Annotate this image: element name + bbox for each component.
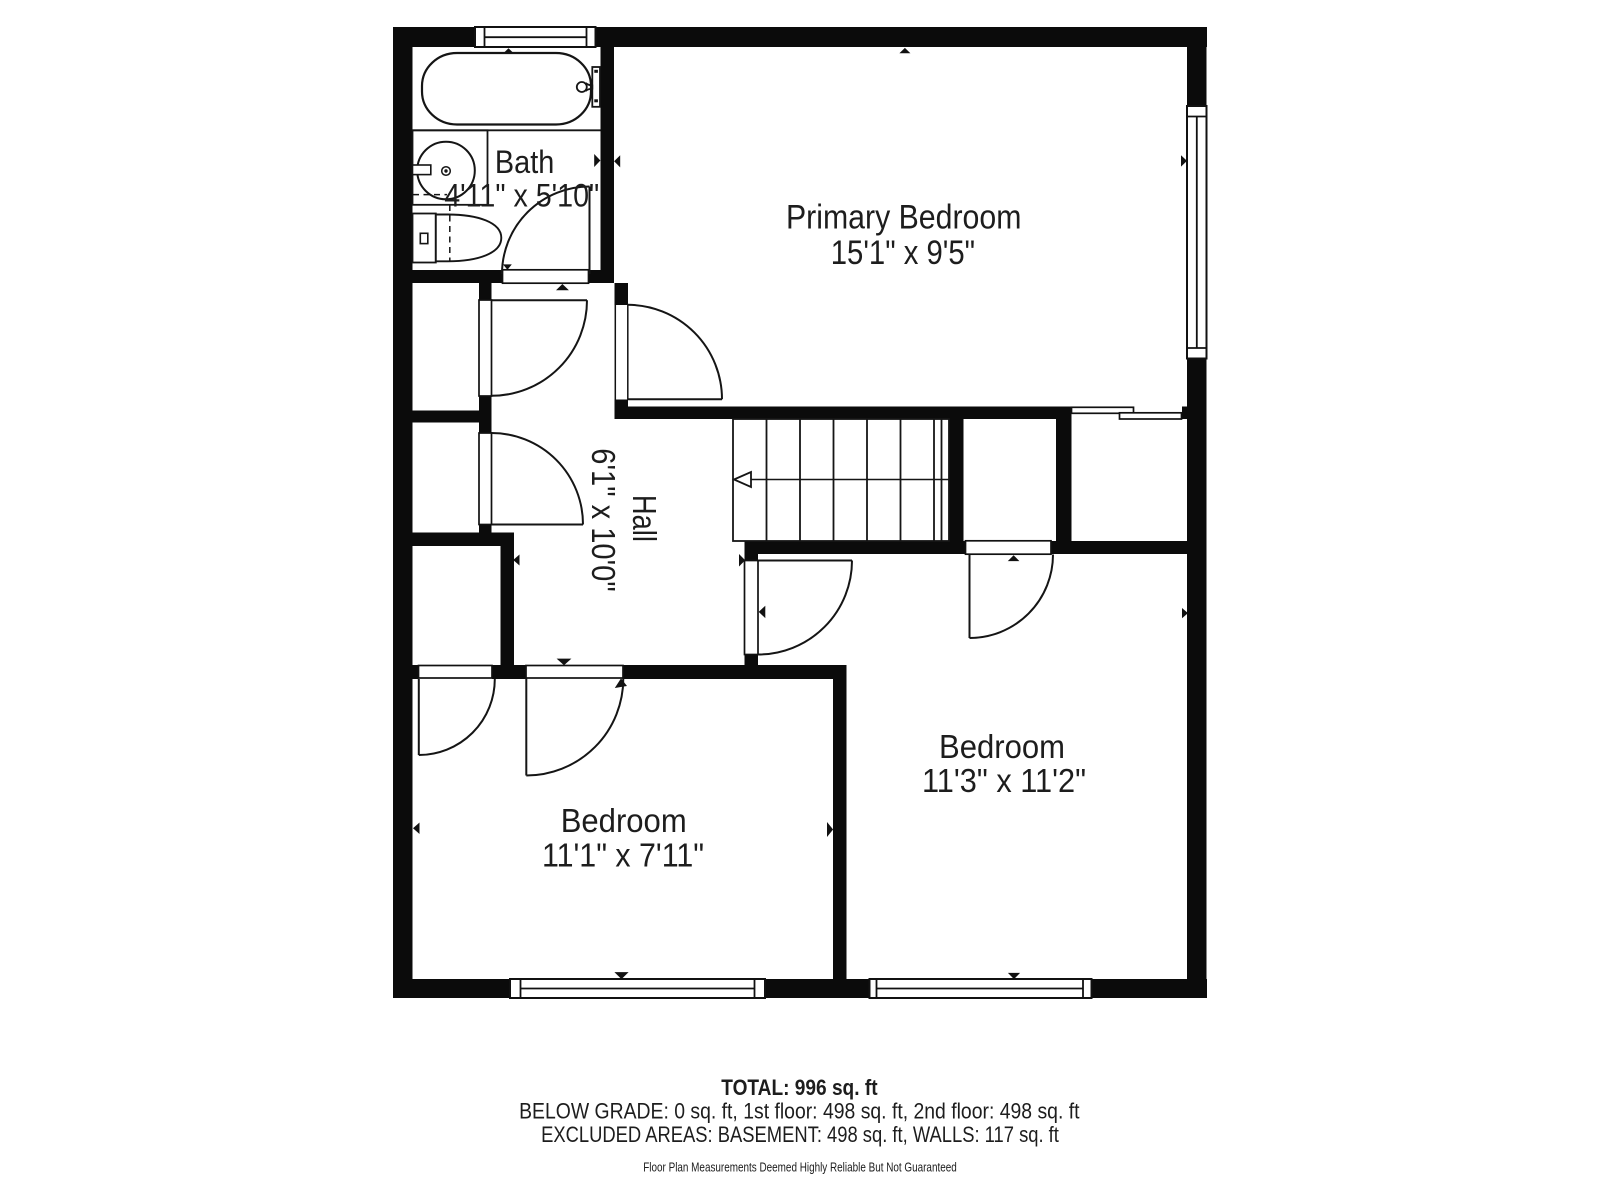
svg-text:TOTAL: 996 sq. ft: TOTAL: 996 sq. ft [721, 1075, 878, 1100]
svg-text:Primary Bedroom: Primary Bedroom [786, 199, 1021, 237]
svg-text:EXCLUDED AREAS: BASEMENT: 498: EXCLUDED AREAS: BASEMENT: 498 sq. ft, WA… [541, 1122, 1059, 1147]
svg-text:15'1" x 9'5": 15'1" x 9'5" [831, 234, 975, 272]
svg-text:Hall: Hall [626, 495, 663, 542]
svg-text:Bedroom: Bedroom [561, 802, 687, 839]
svg-text:11'3" x 11'2": 11'3" x 11'2" [922, 762, 1086, 799]
svg-text:11'1" x 7'11": 11'1" x 7'11" [542, 837, 704, 874]
svg-text:Bath: Bath [495, 144, 554, 180]
svg-text:6'1" x 10'0": 6'1" x 10'0" [585, 448, 622, 591]
svg-text:4'11" x 5'10": 4'11" x 5'10" [444, 178, 599, 214]
svg-text:Floor Plan Measurements Deemed: Floor Plan Measurements Deemed Highly Re… [643, 1160, 957, 1175]
svg-text:Bedroom: Bedroom [939, 728, 1065, 765]
svg-text:BELOW GRADE: 0 sq. ft, 1st flo: BELOW GRADE: 0 sq. ft, 1st floor: 498 sq… [519, 1099, 1080, 1124]
